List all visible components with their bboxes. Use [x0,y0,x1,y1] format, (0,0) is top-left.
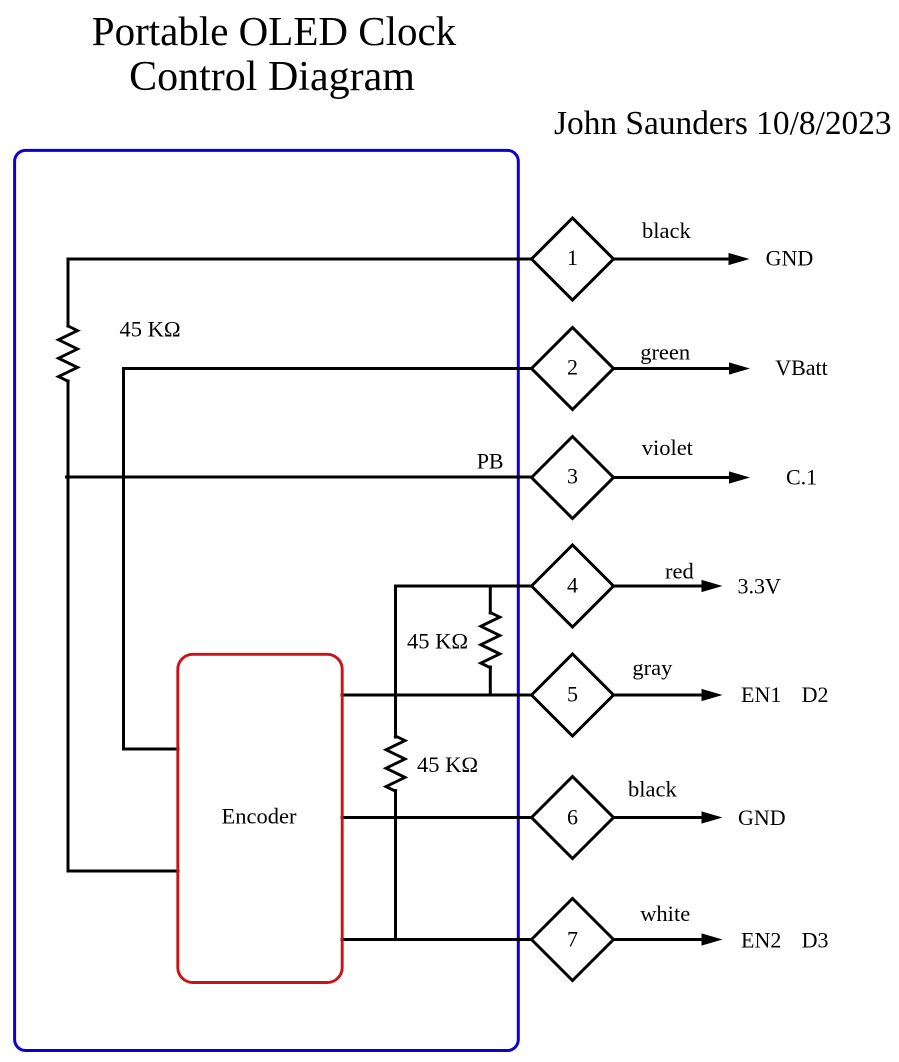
svg-text:D2: D2 [802,682,829,707]
svg-text:3.3V: 3.3V [738,573,782,598]
svg-text:3: 3 [567,464,578,489]
svg-text:PB: PB [477,448,504,473]
svg-text:John Saunders 10/8/2023: John Saunders 10/8/2023 [554,105,892,142]
svg-text:GND: GND [738,805,786,830]
svg-text:2: 2 [567,354,578,379]
svg-text:VBatt: VBatt [775,355,828,380]
svg-text:45 KΩ: 45 KΩ [120,316,181,341]
svg-text:gray: gray [632,655,673,680]
svg-text:45 KΩ: 45 KΩ [407,629,468,654]
svg-text:EN1: EN1 [741,682,781,707]
svg-text:45 KΩ: 45 KΩ [417,752,478,777]
svg-text:Portable OLED Clock: Portable OLED Clock [92,8,457,54]
svg-text:white: white [640,901,690,926]
svg-text:D3: D3 [802,927,829,952]
svg-text:GND: GND [766,246,814,271]
svg-text:EN2: EN2 [741,927,781,952]
svg-text:Control Diagram: Control Diagram [129,54,415,100]
svg-text:black: black [628,776,677,801]
svg-text:7: 7 [567,927,578,952]
svg-text:green: green [640,340,690,365]
svg-text:4: 4 [567,573,578,598]
svg-text:1: 1 [567,245,578,270]
svg-text:5: 5 [567,681,578,706]
svg-text:Encoder: Encoder [222,803,297,828]
svg-text:C.1: C.1 [786,464,817,489]
svg-text:violet: violet [642,435,694,460]
svg-text:black: black [642,218,691,243]
svg-text:red: red [665,559,694,584]
svg-text:6: 6 [567,805,578,830]
